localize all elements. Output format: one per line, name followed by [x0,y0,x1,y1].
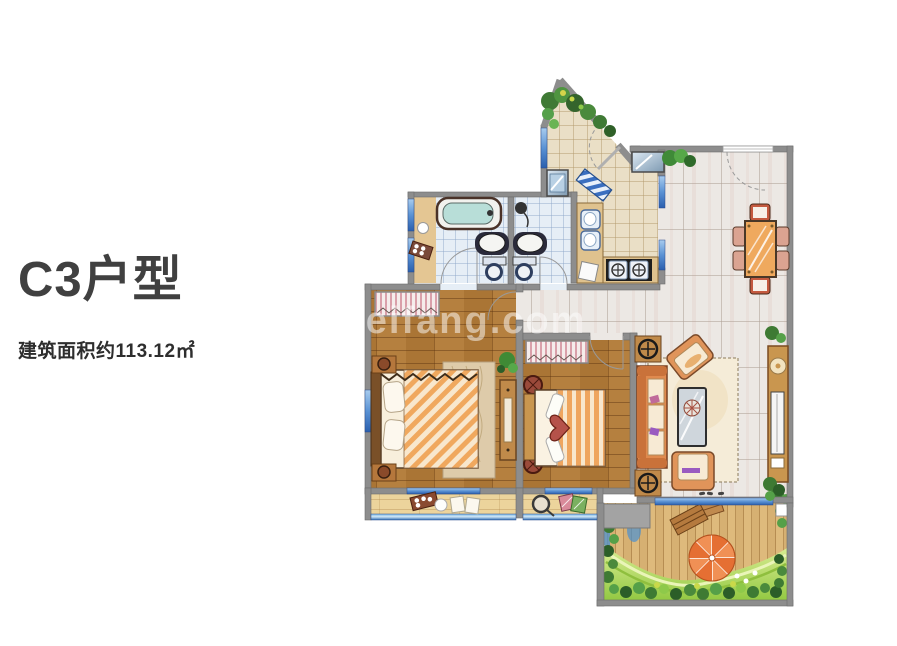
page: C3户型 建筑面积约113.12㎡ [0,0,897,646]
sofa [637,366,667,468]
nightstand [372,356,396,373]
balcony-railing [523,514,597,520]
cushion [465,497,480,514]
stool [418,223,429,234]
balcony-sliding-door [407,488,480,494]
cushion [450,496,465,513]
window [408,199,414,231]
coffee-table [678,388,706,446]
wardrobe [526,341,588,363]
nightstand [372,464,396,481]
dresser [500,380,516,460]
armchair-bottom [672,452,714,490]
master-bed [371,370,478,468]
balcony-railing [371,514,516,520]
entry-shoe-cabinet [632,152,664,172]
sink-2 [517,234,543,252]
umbrella [689,535,735,581]
washing-machine [547,170,568,196]
door-gap-floor [440,284,477,290]
stool [435,499,447,511]
terrace-sliding-door [655,498,773,505]
tv-cabinet [768,346,788,482]
flower [735,574,740,579]
flower [744,579,749,584]
side-table-lamp [635,470,661,496]
chair-seat [753,207,767,218]
shower-head [515,202,527,214]
pillow [382,381,405,413]
balcony-sliding-door [545,488,592,494]
floor-plan [0,0,897,646]
window [365,390,371,432]
stove [606,259,652,281]
window [541,128,547,168]
dining-table [745,221,776,277]
door-gap-floor [590,333,623,340]
sink-1 [479,234,505,252]
bathtub-basin [443,203,493,224]
dining-chair [776,227,789,246]
dining-chair [776,251,789,270]
kitchen-stool [578,262,598,282]
flower [753,571,758,576]
door-gap-floor [516,292,523,320]
bed-2 [524,390,605,466]
sliding-door-panel [659,176,665,208]
chair-seat [753,280,767,291]
corner-pillar [776,504,788,516]
bathtub-drain [487,210,493,216]
pillow [382,419,405,451]
wardrobe [375,292,439,316]
bath-utility-floor [414,197,436,283]
sliding-door-panel [659,240,665,270]
side-table-lamp [635,336,661,362]
door-gap-floor [540,284,567,290]
terrace-platform [600,504,650,528]
